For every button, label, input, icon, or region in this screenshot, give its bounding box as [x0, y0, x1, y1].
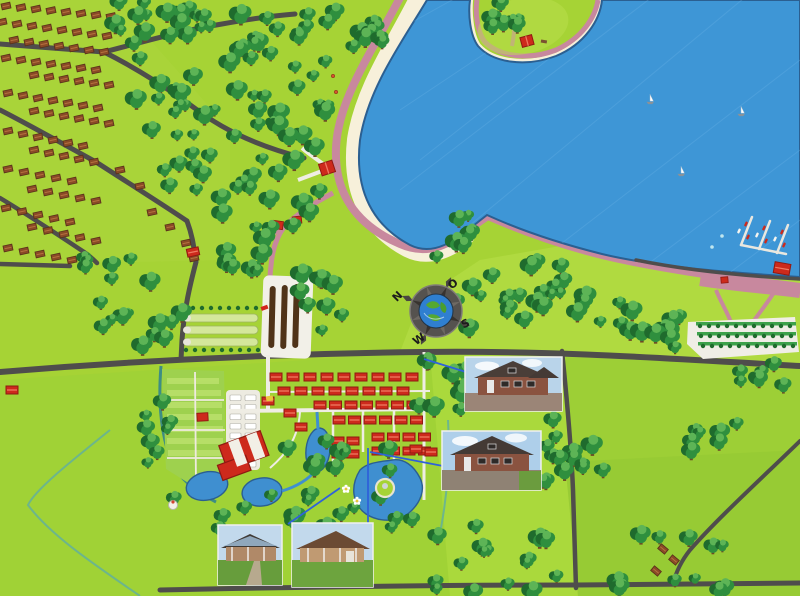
photo-inset-villa-lower[interactable] — [442, 431, 541, 490]
play-island — [376, 479, 394, 497]
lake — [359, 0, 800, 280]
photo-inset-bungalow-left[interactable] — [218, 525, 282, 585]
globe-icon — [419, 294, 453, 328]
windmill — [169, 500, 178, 509]
shore-kiosk — [721, 277, 728, 284]
photo-inset-bungalow-right[interactable] — [292, 523, 373, 587]
resort-map[interactable]: N O S W — [0, 0, 800, 596]
greenhouses — [183, 314, 258, 346]
campground-building — [197, 413, 208, 422]
photo-inset-villa-upper[interactable] — [465, 357, 562, 411]
resort-map-viewport[interactable]: N O S W — [0, 0, 800, 596]
marina-building — [773, 262, 791, 276]
